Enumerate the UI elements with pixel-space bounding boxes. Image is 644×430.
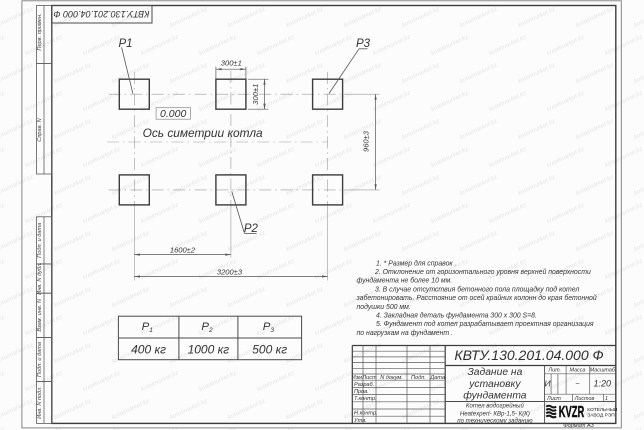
svg-text:Подп. и дата: Подп. и дата xyxy=(37,342,43,377)
svg-text:Р1: Р1 xyxy=(118,38,132,50)
svg-text:1:20: 1:20 xyxy=(594,378,612,388)
svg-text:Утв.: Утв. xyxy=(353,418,367,424)
svg-text:3. В случае отсутствия бетонно: 3. В случае отсутствия бетонного пола пл… xyxy=(375,285,579,293)
svg-text:5. Фундамент под котел разраба: 5. Фундамент под котел разрабатывает про… xyxy=(376,320,594,328)
svg-text:2. Отклонение от горизонтально: 2. Отклонение от горизонтального уровня … xyxy=(374,268,591,276)
svg-text:Формат А3: Формат А3 xyxy=(563,423,594,429)
svg-text:Пров.: Пров. xyxy=(354,389,369,395)
svg-text:Heatexpert- КВр-1,5- К(К): Heatexpert- КВр-1,5- К(К) xyxy=(460,410,530,417)
svg-text:Взам. инв. N: Взам. инв. N xyxy=(37,298,43,332)
svg-text:КВТУ.130.201.04.000 Ф: КВТУ.130.201.04.000 Ф xyxy=(54,9,150,19)
svg-text:Лит.: Лит. xyxy=(547,368,561,374)
svg-text:Масштаб: Масштаб xyxy=(590,368,616,374)
svg-text:Котел водогрейный: Котел водогрейный xyxy=(466,403,525,410)
svg-text:ЗАВОД РЭП: ЗАВОД РЭП xyxy=(587,412,615,418)
svg-text:300±1: 300±1 xyxy=(251,84,260,105)
svg-text:по нагрузкам на фундамент .: по нагрузкам на фундамент . xyxy=(357,329,454,337)
svg-text:0.000: 0.000 xyxy=(160,108,186,120)
svg-text:Лист: Лист xyxy=(361,375,377,381)
svg-text:Инв. N подл.: Инв. N подл. xyxy=(37,386,43,419)
svg-text:КВТУ.130.201.04.000 Ф: КВТУ.130.201.04.000 Ф xyxy=(454,347,603,363)
svg-text:Перв. примен.: Перв. примен. xyxy=(37,13,43,50)
svg-text:Р3: Р3 xyxy=(356,38,371,50)
svg-text:Дата: Дата xyxy=(429,375,445,381)
svg-text:KVZR: KVZR xyxy=(559,404,585,421)
svg-text:N докум.: N докум. xyxy=(380,375,403,381)
svg-text:400 кг: 400 кг xyxy=(131,343,166,357)
svg-text:Лист: Лист xyxy=(546,396,561,402)
svg-text:1: 1 xyxy=(605,396,608,402)
svg-text:1000 кг: 1000 кг xyxy=(188,343,230,357)
svg-text:500 кг: 500 кг xyxy=(252,343,287,357)
svg-text:1. * Размер для справок .: 1. * Размер для справок . xyxy=(376,259,457,267)
svg-text:−: − xyxy=(575,379,580,388)
svg-text:960±3: 960±3 xyxy=(362,130,371,152)
svg-text:Листов: Листов xyxy=(574,396,595,402)
svg-text:забетонировать. Расстояние от: забетонировать. Расстояние от осей крайн… xyxy=(356,294,597,302)
svg-text:Подп. и дата: Подп. и дата xyxy=(37,223,43,258)
svg-text:300±1: 300±1 xyxy=(221,59,242,68)
svg-text:по техническому заданию: по техническому заданию xyxy=(457,418,533,425)
svg-text:Задание на: Задание на xyxy=(467,367,522,378)
svg-text:подушки 500 мм.: подушки 500 мм. xyxy=(357,303,411,311)
svg-text:Р2: Р2 xyxy=(244,223,259,235)
svg-text:установку: установку xyxy=(468,379,521,390)
svg-text:И: И xyxy=(545,379,552,389)
svg-text:фундамента: фундамента xyxy=(463,389,527,401)
svg-text:4. Закладная деталь фундамента: 4. Закладная деталь фундамента 300 х 300… xyxy=(376,312,537,320)
svg-text:фундамента не более 10 мм.: фундамента не более 10 мм. xyxy=(357,277,453,285)
svg-text:Подп.: Подп. xyxy=(411,375,426,381)
svg-text:Т.контр.: Т.контр. xyxy=(354,396,377,402)
svg-text:Разраб.: Разраб. xyxy=(354,382,374,388)
svg-text:Масса: Масса xyxy=(570,368,586,374)
svg-text:Справ. N: Справ. N xyxy=(37,117,43,141)
svg-text:Н.контр.: Н.контр. xyxy=(354,411,378,417)
svg-text:3200±3: 3200±3 xyxy=(217,268,243,277)
svg-text:Ось симетрии котла: Ось симетрии котла xyxy=(143,126,263,140)
svg-text:1600±2: 1600±2 xyxy=(170,246,196,255)
svg-text:Инв. N дубл.: Инв. N дубл. xyxy=(37,262,43,294)
